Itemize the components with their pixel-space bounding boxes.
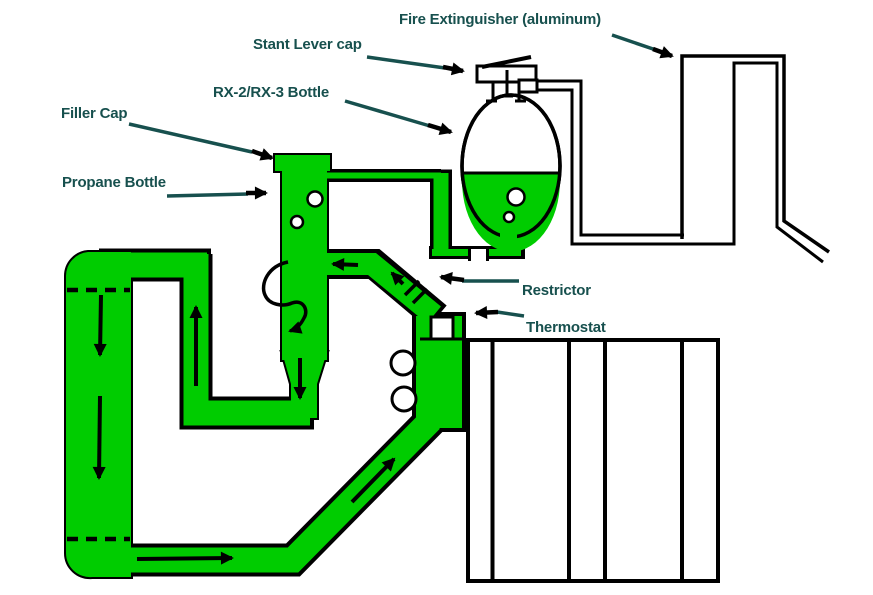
bubble-icon (504, 212, 514, 222)
label-stant-lever-cap: Stant Lever cap (253, 37, 362, 53)
fire-extinguisher-tube (534, 56, 829, 262)
bubble-icon (308, 192, 323, 207)
label-rx-bottle: RX-2/RX-3 Bottle (213, 85, 329, 101)
flow-arrow-down-icon (99, 396, 100, 478)
radiator (468, 340, 718, 581)
pointer-stant-cap (443, 67, 463, 71)
flow-arrow-left-icon (333, 264, 358, 265)
label-restrictor: Restrictor (522, 283, 591, 299)
flow-arrow-down-icon (100, 295, 101, 355)
rx-bottle (462, 95, 560, 252)
pointer-fire-extinguisher (653, 49, 672, 56)
label-filler-cap: Filler Cap (61, 106, 127, 122)
label-thermostat: Thermostat (526, 320, 606, 336)
pointer-thermostat (476, 312, 498, 313)
fire-extinguisher-outline (682, 56, 829, 252)
bubble-icon (291, 216, 303, 228)
orifice-slot (470, 247, 488, 261)
pointer-filler-cap (252, 151, 272, 158)
label-propane-bottle: Propane Bottle (62, 175, 166, 191)
coolant-system-diagram (0, 0, 873, 595)
stant-cap (477, 57, 537, 101)
diagram-canvas: Fire Extinguisher (aluminum) Stant Lever… (0, 0, 873, 595)
pointer-rx-bottle (428, 125, 451, 132)
flow-arrow-right-icon (137, 558, 232, 559)
label-fire-extinguisher: Fire Extinguisher (aluminum) (399, 12, 601, 28)
pointer-restrictor (441, 277, 464, 280)
bubble-icon (508, 189, 525, 206)
bottom-diagonal-casing (99, 420, 431, 560)
